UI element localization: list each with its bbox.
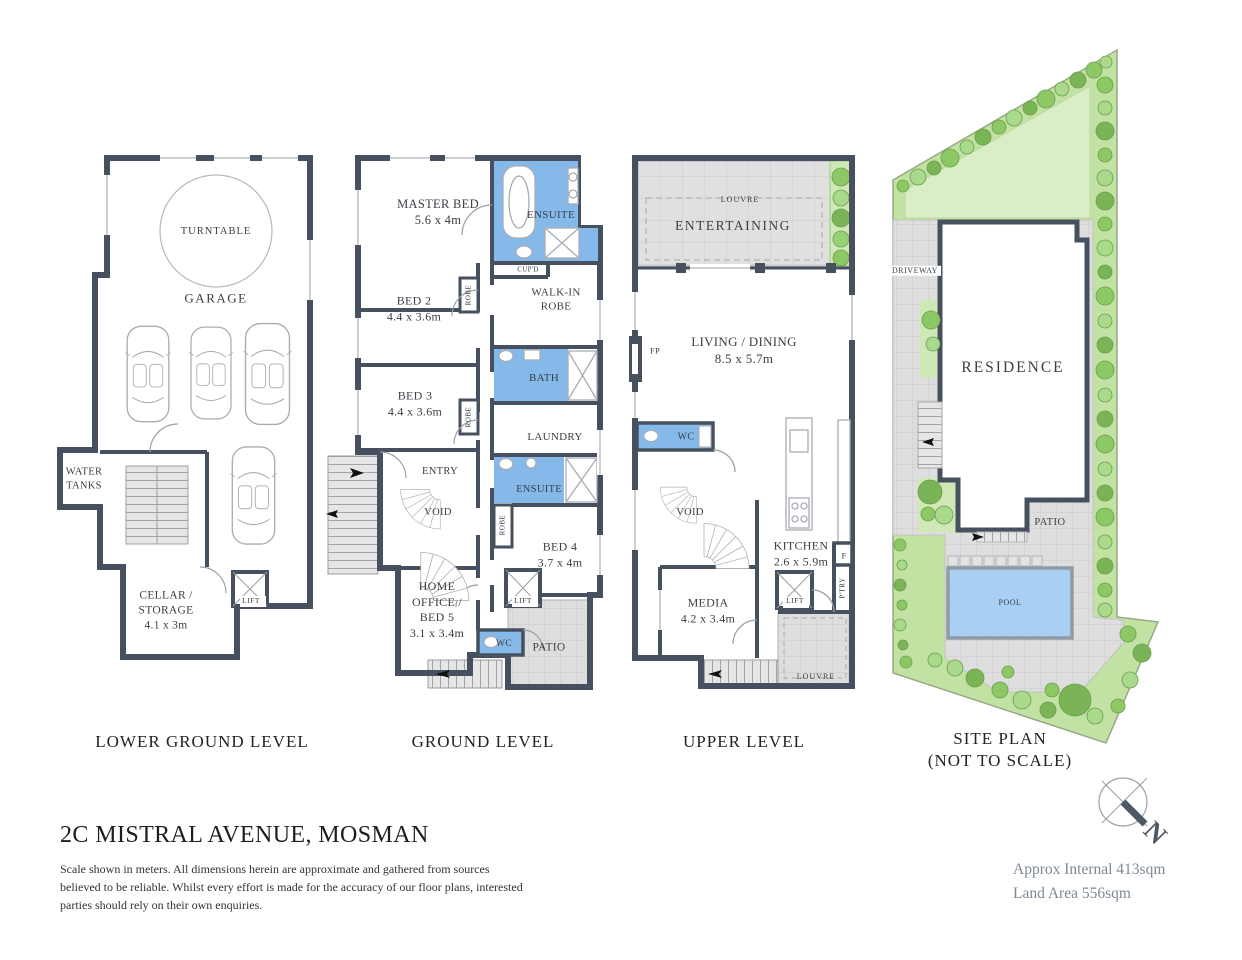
upper-void-stair (704, 524, 749, 569)
level-title-ground: GROUND LEVEL (412, 731, 555, 753)
room-label-living-dining: LIVING / DINING 8.5 x 5.7m (679, 334, 809, 368)
site-label-patio: PATIO (1034, 516, 1065, 530)
room-label-robe1: ROBE (464, 285, 473, 306)
planter-strip (830, 161, 852, 266)
room-label-bed2: BED 2 4.4 x 3.6m (369, 293, 459, 324)
room-label-turntable: TURNTABLE (181, 225, 252, 239)
room-label-garage: GARAGE (184, 291, 247, 308)
room-label-cellar: CELLAR / STORAGE 4.1 x 3m (119, 589, 214, 634)
room-label-louvre-bottom: LOUVRE (797, 672, 835, 682)
room-label-wc-upper: WC (678, 431, 695, 444)
room-label-entertaining: ENTERTAINING (675, 217, 791, 235)
side-steps (918, 402, 942, 468)
site-label-driveway: DRIVEWAY (889, 266, 941, 276)
car-icon (189, 327, 232, 419)
room-label-entry: ENTRY (422, 465, 458, 479)
compass-icon (1085, 758, 1205, 873)
land-area: Land Area 556sqm (1013, 882, 1165, 906)
room-label-laundry: LAUNDRY (527, 430, 582, 444)
room-label-master-bed: MASTER BED 5.6 x 4m (383, 196, 493, 229)
patio-steps (977, 532, 1027, 542)
room-label-pantry: P'TRY (838, 577, 847, 598)
upper-wc (637, 423, 713, 450)
lawn (905, 86, 1090, 218)
floorplan-sheet: N TURNTABLE GARAGE WATER TANKS CELLAR / … (0, 0, 1242, 960)
site-plan (885, 45, 1200, 750)
room-label-home-office: HOME OFFICE / BED 5 3.1 x 3.4m (398, 579, 476, 641)
room-label-ensuite1: ENSUITE (527, 208, 575, 222)
area-figures: Approx Internal 413sqm Land Area 556sqm (1013, 858, 1165, 906)
room-label-louvre-top: LOUVRE (721, 195, 759, 205)
room-label-cupd: CUP'D (517, 265, 538, 274)
room-label-water-tanks: WATER TANKS (58, 465, 110, 492)
car-icon (231, 447, 277, 544)
room-label-lift-lower: LIFT (242, 596, 260, 606)
room-label-fridge: F (841, 550, 846, 561)
car-icon (244, 324, 292, 425)
page-title: 2C MISTRAL AVENUE, MOSMAN (60, 822, 429, 849)
level-title-upper: UPPER LEVEL (683, 731, 805, 753)
room-label-walkin-robe: WALK-IN ROBE (525, 286, 587, 315)
room-label-media: MEDIA 4.2 x 3.4m (666, 595, 751, 626)
level-title-site-1: SITE PLAN (953, 728, 1047, 750)
room-label-robe2: ROBE (464, 407, 473, 428)
kitchen-island (786, 418, 850, 545)
room-label-bed4: BED 4 3.7 x 4m (520, 539, 600, 570)
site-label-pool: POOL (999, 598, 1022, 608)
room-label-fp: FP (650, 345, 660, 356)
internal-area: Approx Internal 413sqm (1013, 858, 1165, 882)
car-icon (125, 326, 170, 421)
room-label-bath: BATH (529, 371, 559, 385)
room-label-kitchen: KITCHEN 2.6 x 5.9m (761, 538, 841, 569)
entertaining-deck (638, 161, 830, 266)
level-title-site-2: (NOT TO SCALE) (928, 750, 1072, 772)
level-title-lower-ground: LOWER GROUND LEVEL (95, 731, 308, 753)
room-label-void-upper: VOID (676, 506, 703, 520)
room-label-wc-ground: WC (496, 638, 512, 650)
room-label-bed3: BED 3 4.4 x 3.6m (370, 388, 460, 419)
room-label-lift-upper: LIFT (786, 596, 804, 606)
room-label-void-ground: VOID (424, 506, 451, 520)
room-label-lift-ground: LIFT (514, 596, 532, 606)
room-label-ensuite2: ENSUITE (516, 483, 562, 497)
room-label-patio-ground: PATIO (532, 641, 565, 656)
site-label-residence: RESIDENCE (961, 358, 1064, 378)
disclaimer-text: Scale shown in meters. All dimensions he… (60, 860, 530, 914)
room-label-robe3: ROBE (498, 515, 507, 536)
